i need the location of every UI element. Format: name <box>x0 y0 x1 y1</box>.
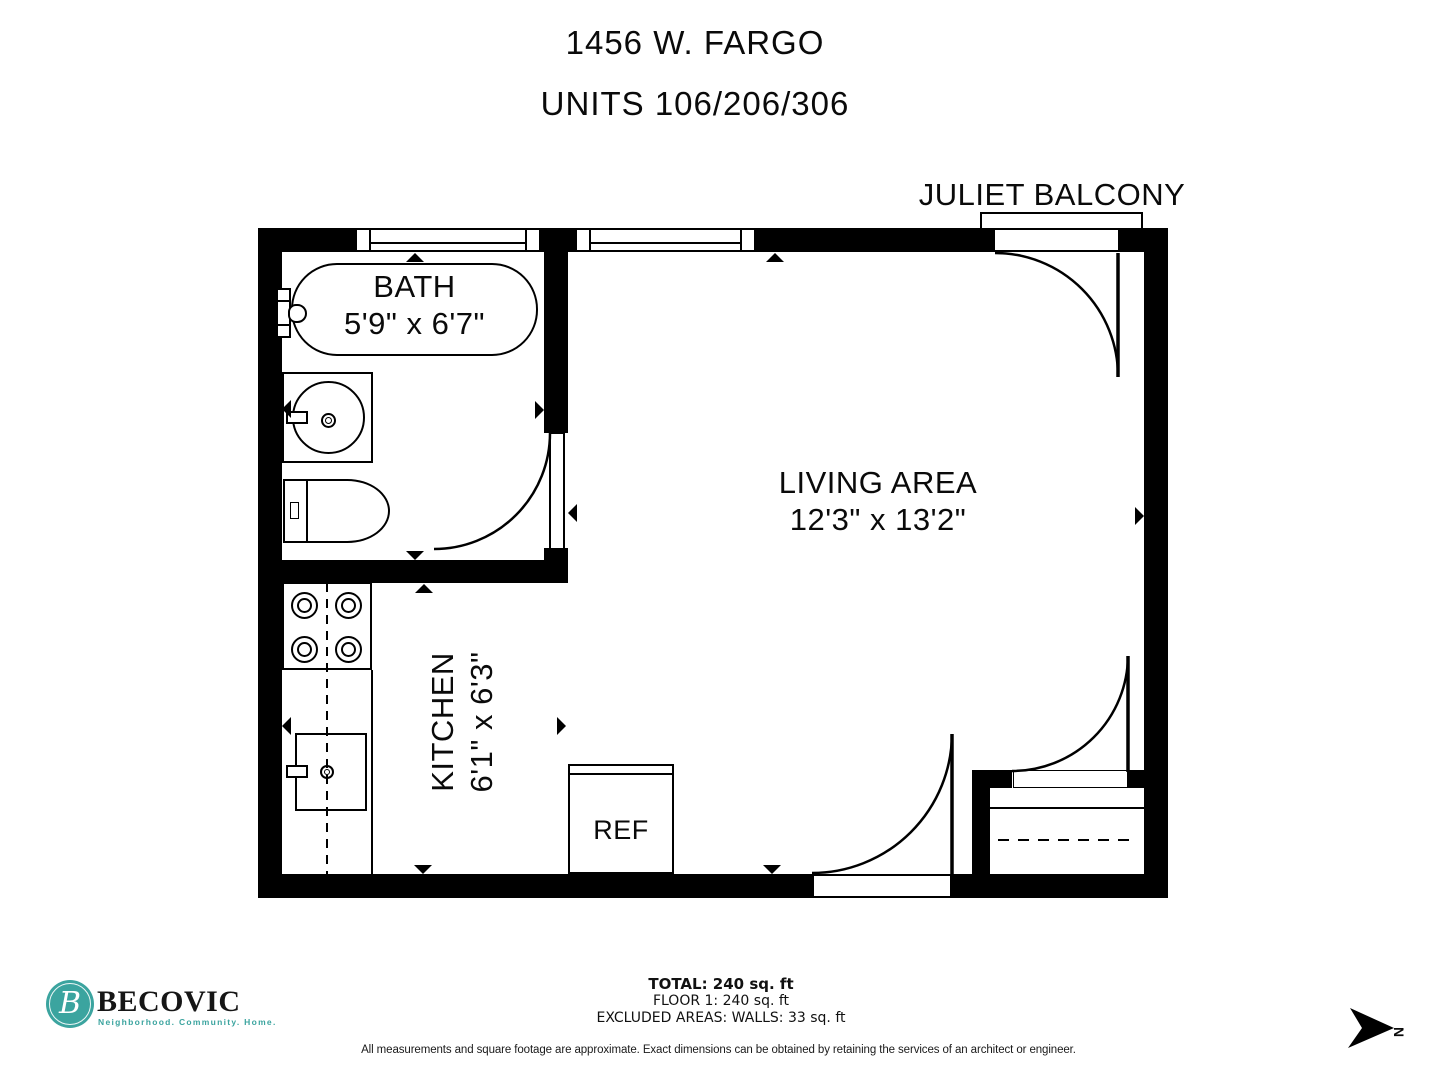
measure-arrow-down-living <box>763 865 781 874</box>
bath-dims: 5'9" x 6'7" <box>291 305 538 342</box>
window-pane-line <box>370 242 526 244</box>
refrigerator-top-line <box>570 773 672 775</box>
kitchen-dims: 6'1" x 6'3" <box>462 651 501 792</box>
window-symbol-bath <box>355 228 541 252</box>
plan-linework <box>0 0 1440 1080</box>
measure-arrow-up-kitchen <box>415 584 433 593</box>
measure-arrow-left-bath <box>282 400 291 418</box>
juliet-balcony-label: JULIET BALCONY <box>902 176 1202 213</box>
title-block: 1456 W. FARGO UNITS 106/206/306 <box>0 24 1390 123</box>
closet-wall-top-left <box>972 770 1012 788</box>
toilet-flush-button <box>290 502 299 519</box>
burner-inner-icon <box>341 598 356 613</box>
sink-drain-inner <box>325 417 332 424</box>
bath-right-wall-upper <box>544 252 568 433</box>
window-jamb <box>525 230 527 250</box>
ref-label: REF <box>568 812 674 849</box>
kitchen-name: KITCHEN <box>423 652 462 792</box>
window-jamb <box>589 230 591 250</box>
measure-arrow-right-living <box>1135 507 1144 525</box>
north-label: N <box>1391 1027 1407 1037</box>
measure-arrow-left-kitchen <box>282 717 291 735</box>
page-title: 1456 W. FARGO <box>0 24 1390 62</box>
balcony-door-opening <box>995 228 1118 252</box>
window-jamb <box>369 230 371 250</box>
closet-door-sill <box>1013 770 1128 788</box>
living-name: LIVING AREA <box>728 464 1028 501</box>
burner-inner-icon <box>297 642 312 657</box>
tub-faucet-line <box>278 300 289 302</box>
measure-arrow-up-living <box>766 253 784 262</box>
bath-label: BATH 5'9" x 6'7" <box>291 268 538 342</box>
excluded-area: EXCLUDED AREAS: WALLS: 33 sq. ft <box>0 1010 1440 1027</box>
bath-bottom-wall <box>282 560 568 583</box>
exterior-wall-right <box>1144 228 1168 898</box>
bath-door-leaf <box>549 432 565 550</box>
measure-arrow-down-kitchen <box>414 865 432 874</box>
floorplan-page: 1456 W. FARGO UNITS 106/206/306 JULIET B… <box>0 0 1440 1080</box>
kitchen-sink-faucet <box>286 765 308 778</box>
disclaimer-text: All measurements and square footage are … <box>0 1044 1437 1056</box>
window-pane-line <box>590 242 741 244</box>
bath-name: BATH <box>291 268 538 305</box>
measure-arrow-right-kitchen <box>557 717 566 735</box>
closet-wall-top-right <box>1128 770 1168 788</box>
tub-faucet-line <box>278 324 289 326</box>
window-jamb <box>740 230 742 250</box>
entry-door-opening <box>812 874 952 898</box>
measure-arrow-up-bath <box>406 253 424 262</box>
kitchen-label: KITCHEN 6'1" x 6'3" <box>382 642 542 802</box>
floor-area: FLOOR 1: 240 sq. ft <box>0 993 1440 1010</box>
burner-inner-icon <box>297 598 312 613</box>
balcony-door-swing <box>995 253 1118 376</box>
units-subtitle: UNITS 106/206/306 <box>0 85 1390 123</box>
toilet-bowl <box>306 479 390 543</box>
measure-arrow-down-bath <box>406 551 424 560</box>
exterior-wall-bottom <box>258 874 1168 898</box>
closet-door-swing <box>1012 656 1128 771</box>
living-area-label: LIVING AREA 12'3" x 13'2" <box>728 464 1028 538</box>
measure-arrow-left-living <box>568 504 577 522</box>
bath-door-swing <box>434 433 550 549</box>
area-totals: TOTAL: 240 sq. ft FLOOR 1: 240 sq. ft EX… <box>0 976 1440 1027</box>
burner-inner-icon <box>341 642 356 657</box>
living-dims: 12'3" x 13'2" <box>728 501 1028 538</box>
window-symbol-living <box>575 228 756 252</box>
entry-door-swing <box>812 734 952 873</box>
total-area: TOTAL: 240 sq. ft <box>0 976 1440 993</box>
kitchen-sink-drain-inner <box>324 769 330 775</box>
measure-arrow-right-bath <box>535 401 544 419</box>
closet-interior <box>990 788 1144 874</box>
